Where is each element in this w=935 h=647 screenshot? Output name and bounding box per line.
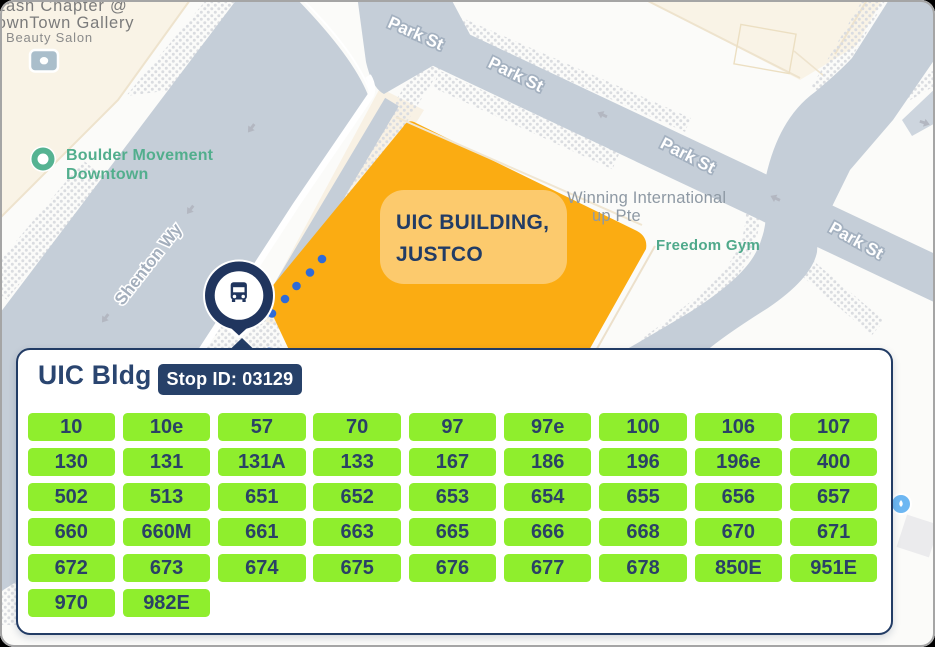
svg-text:Downtown: Downtown [66,166,148,183]
svg-text:Winning International: Winning International [567,189,726,207]
svg-text:Boulder Movement: Boulder Movement [66,147,214,164]
svg-text:UIC BUILDING,: UIC BUILDING, [396,211,549,234]
svg-text:Freedom Gym: Freedom Gym [656,237,760,254]
svg-text:up Pte: up Pte [592,207,641,225]
svg-text:JUSTCO: JUSTCO [396,243,483,266]
svg-text:Beauty Salon: Beauty Salon [6,30,93,45]
svg-text:Lash Chapter @: Lash Chapter @ [0,0,128,15]
